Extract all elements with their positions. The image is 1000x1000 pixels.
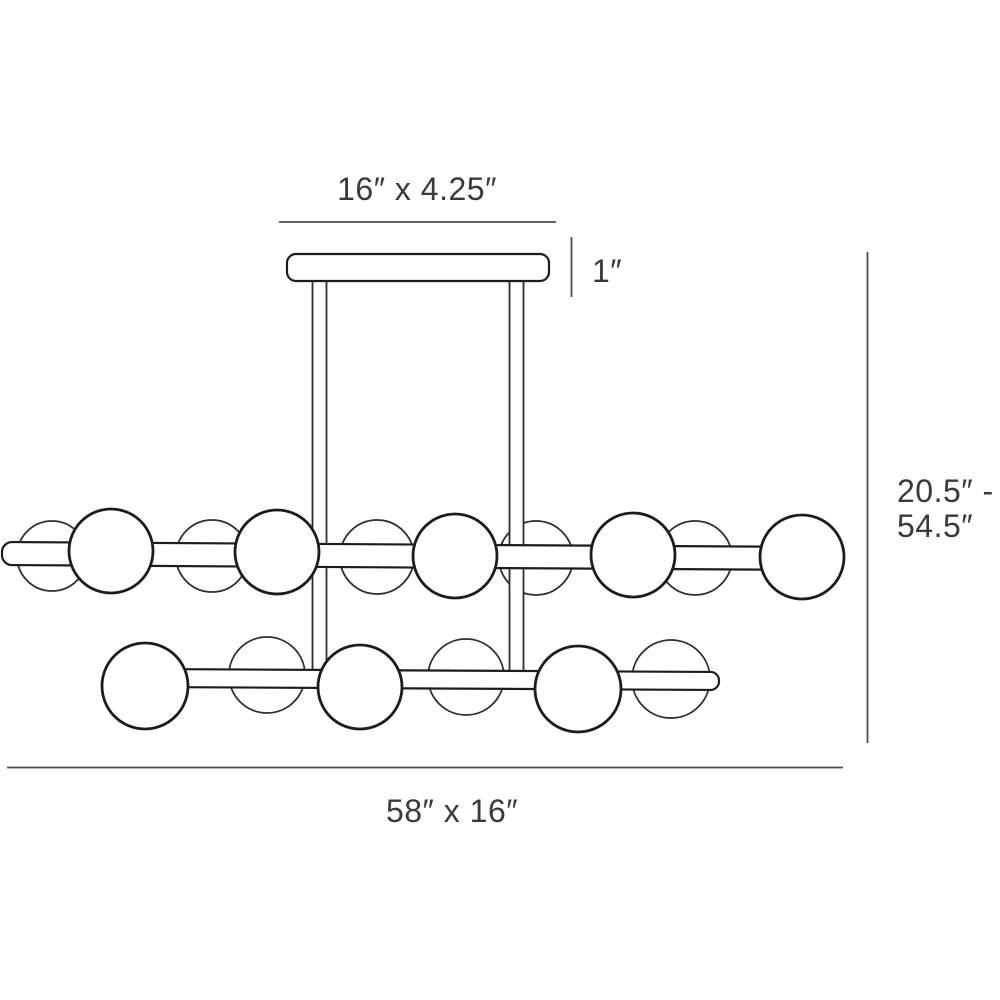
- chandelier-dimension-diagram: 16″ x 4.25″ 1″ 20.5″ - 54.5″ 58″ x 16″: [0, 0, 1000, 1000]
- canopy-size-label: 16″ x 4.25″: [337, 171, 497, 207]
- globe-front: [102, 643, 188, 729]
- globe-front: [535, 646, 621, 732]
- diagram-page: 16″ x 4.25″ 1″ 20.5″ - 54.5″ 58″ x 16″: [0, 0, 1000, 1000]
- rod-arm-lower: [148, 669, 719, 690]
- ceiling-canopy: [287, 254, 549, 281]
- height-range-label-line1: 20.5″ -: [897, 473, 994, 509]
- globe-front: [69, 509, 153, 593]
- globe-front: [413, 514, 497, 598]
- ceiling-canopy-layer: [287, 254, 549, 281]
- globe-front: [760, 515, 844, 599]
- stem-right: [510, 277, 524, 675]
- fixture-size-label: 58″ x 16″: [386, 793, 518, 829]
- hanging-stems-layer: [313, 277, 524, 675]
- stem-left: [313, 277, 327, 674]
- globe-front: [235, 510, 319, 594]
- height-range-label-line2: 54.5″: [897, 508, 973, 544]
- globe-front: [591, 513, 675, 597]
- canopy-height-label: 1″: [592, 253, 622, 289]
- globe-front: [318, 645, 402, 729]
